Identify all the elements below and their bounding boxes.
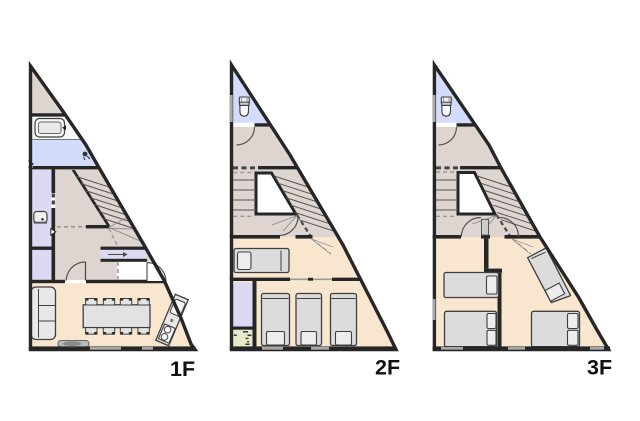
svg-text:3F: 3F bbox=[587, 356, 612, 380]
svg-text:2F: 2F bbox=[375, 356, 400, 380]
svg-text:1F: 1F bbox=[170, 357, 195, 381]
